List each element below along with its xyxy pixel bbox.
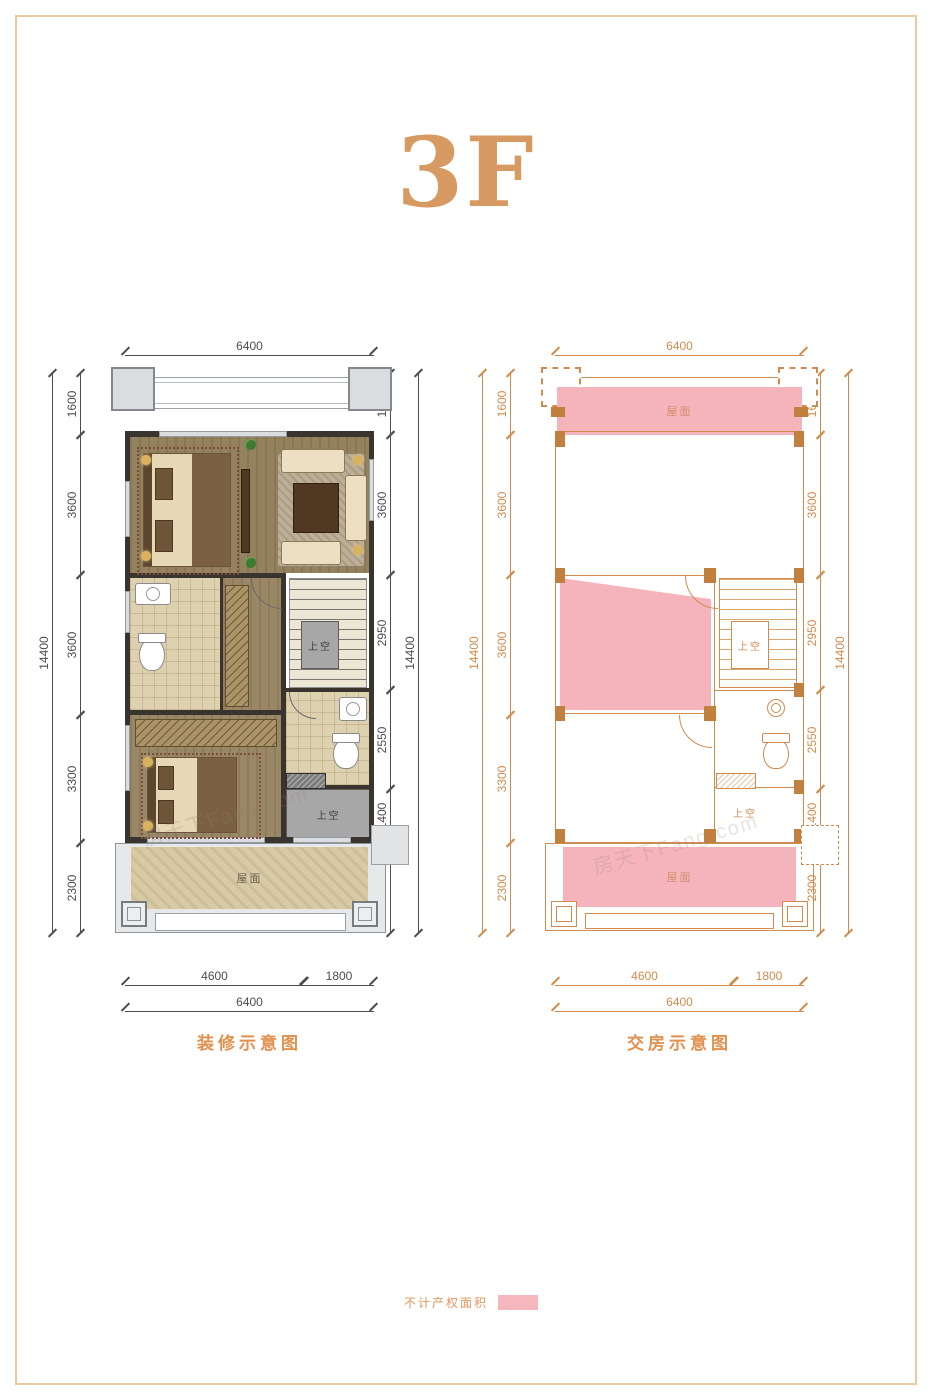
- stair-void-area: 上空: [301, 621, 339, 669]
- window: [369, 459, 374, 521]
- dim-bottom-seg: 1800: [734, 985, 804, 986]
- dim-right-seg: 2550: [820, 690, 821, 789]
- dim-top-total: 6400: [555, 355, 804, 356]
- wall-pier: [555, 431, 565, 447]
- sofa: [345, 475, 367, 541]
- dim-left-total: 14400: [52, 373, 53, 933]
- dim-left-seg: 3600: [80, 435, 81, 575]
- floorplan-sheet: 3F 6400 14400 1600 3600 3600 3300 2300 1…: [0, 0, 932, 1400]
- window: [125, 725, 130, 791]
- dim-left-seg: 1600: [80, 373, 81, 435]
- dim-left-seg: 2300: [80, 843, 81, 933]
- wall-pier: [551, 407, 565, 417]
- side-table: [353, 545, 363, 555]
- window: [159, 431, 287, 437]
- plant: [245, 439, 256, 450]
- pillow: [158, 766, 174, 790]
- dim-right-seg: 2950: [820, 575, 821, 690]
- stair-void-area: 上空: [731, 621, 769, 669]
- dim-right-seg: 2950: [390, 575, 391, 690]
- dim-right-seg: 3600: [820, 435, 821, 575]
- wall-pier: [555, 706, 565, 721]
- console-table: [241, 469, 250, 553]
- toilet-tank: [332, 733, 360, 743]
- wall: [125, 710, 284, 715]
- legend-label: 不计产权面积: [404, 1294, 488, 1311]
- dim-right-seg: 1600: [820, 373, 821, 435]
- wall-pier: [794, 683, 804, 697]
- wall-pier: [794, 780, 804, 794]
- wall-pier: [555, 568, 565, 583]
- wall-pier: [794, 407, 808, 417]
- dim-left-seg: 3600: [510, 435, 511, 575]
- dim-left-seg: 3600: [510, 575, 511, 715]
- pillow: [155, 520, 173, 552]
- dim-top-total: 6400: [125, 355, 374, 356]
- wall-pier: [704, 568, 716, 583]
- dim-bottom-total: 6400: [555, 1011, 804, 1012]
- armchair: [281, 541, 341, 565]
- decor-plan: 6400 14400 1600 3600 3600 3300 2300 1600…: [40, 333, 440, 1078]
- side-ledge: [371, 825, 409, 865]
- sink: [135, 583, 171, 605]
- toilet: [763, 739, 789, 769]
- window: [125, 481, 130, 537]
- delivery-plan: 6400 14400 1600 3600 3600 3300 2300 1600…: [470, 333, 870, 1078]
- terrace-post: [352, 901, 378, 927]
- plan-caption: 装修示意图: [125, 1029, 374, 1054]
- dim-left-seg: 3300: [510, 715, 511, 843]
- coffee-table: [293, 483, 339, 533]
- window: [125, 591, 130, 633]
- wall-line: [714, 690, 804, 691]
- dim-bottom-seg: 4600: [555, 985, 734, 986]
- corner-post: [111, 367, 155, 411]
- dim-left-total: 14400: [482, 373, 483, 933]
- dim-bottom-seg: 1800: [304, 985, 374, 986]
- terrace-post: [121, 901, 147, 927]
- bed-headboard: [144, 454, 152, 566]
- terrace-floor: 屋面: [131, 847, 368, 909]
- toilet: [139, 639, 165, 671]
- side-ledge: [801, 825, 839, 865]
- toilet-tank: [138, 633, 166, 643]
- wardrobe: [225, 585, 249, 707]
- bedside-lamp: [141, 455, 151, 465]
- pillow: [155, 468, 173, 500]
- dim-bottom-total: 6400: [125, 1011, 374, 1012]
- terrace-edge: [155, 913, 346, 931]
- terrace-edge: [585, 913, 774, 929]
- equipment-box: [716, 773, 756, 789]
- bed: [143, 453, 231, 567]
- legend-swatch: [498, 1295, 538, 1310]
- wall-pier: [794, 431, 804, 447]
- dim-left-seg: 3600: [80, 575, 81, 715]
- dim-right-total: 14400: [848, 373, 849, 933]
- wall-line: [555, 713, 714, 714]
- toilet: [333, 739, 359, 769]
- wardrobe: [135, 719, 277, 747]
- side-table: [353, 455, 363, 465]
- dim-right-seg: 3600: [390, 435, 391, 575]
- wall-pier: [704, 706, 716, 721]
- dim-left-seg: 1600: [510, 373, 511, 435]
- terrace-post: [551, 901, 577, 927]
- toilet-tank: [762, 733, 790, 743]
- dim-bottom-seg: 4600: [125, 985, 304, 986]
- decor-plan-drawing: 上空 上空: [125, 373, 374, 933]
- dim-right-seg: 2550: [390, 690, 391, 789]
- bedside-lamp: [141, 551, 151, 561]
- wall: [220, 578, 223, 710]
- wall-pier: [794, 568, 804, 583]
- floor-drain: [767, 699, 785, 717]
- sink: [339, 697, 367, 721]
- roof-area-pink: 屋面: [557, 387, 802, 435]
- plan-caption: 交房示意图: [555, 1029, 804, 1054]
- bed-blanket: [192, 454, 230, 566]
- floor-title: 3F: [0, 116, 932, 229]
- void-room-pink: [560, 578, 711, 710]
- corner-post: [348, 367, 392, 411]
- terrace-post: [782, 901, 808, 927]
- legend: 不计产权面积: [404, 1294, 538, 1311]
- bedside-lamp: [143, 757, 153, 767]
- dim-right-total: 14400: [418, 373, 419, 933]
- wall-pier: [555, 829, 565, 843]
- plant: [245, 557, 256, 568]
- sofa: [281, 449, 345, 473]
- dim-left-seg: 3300: [80, 715, 81, 843]
- dim-left-seg: 2300: [510, 843, 511, 933]
